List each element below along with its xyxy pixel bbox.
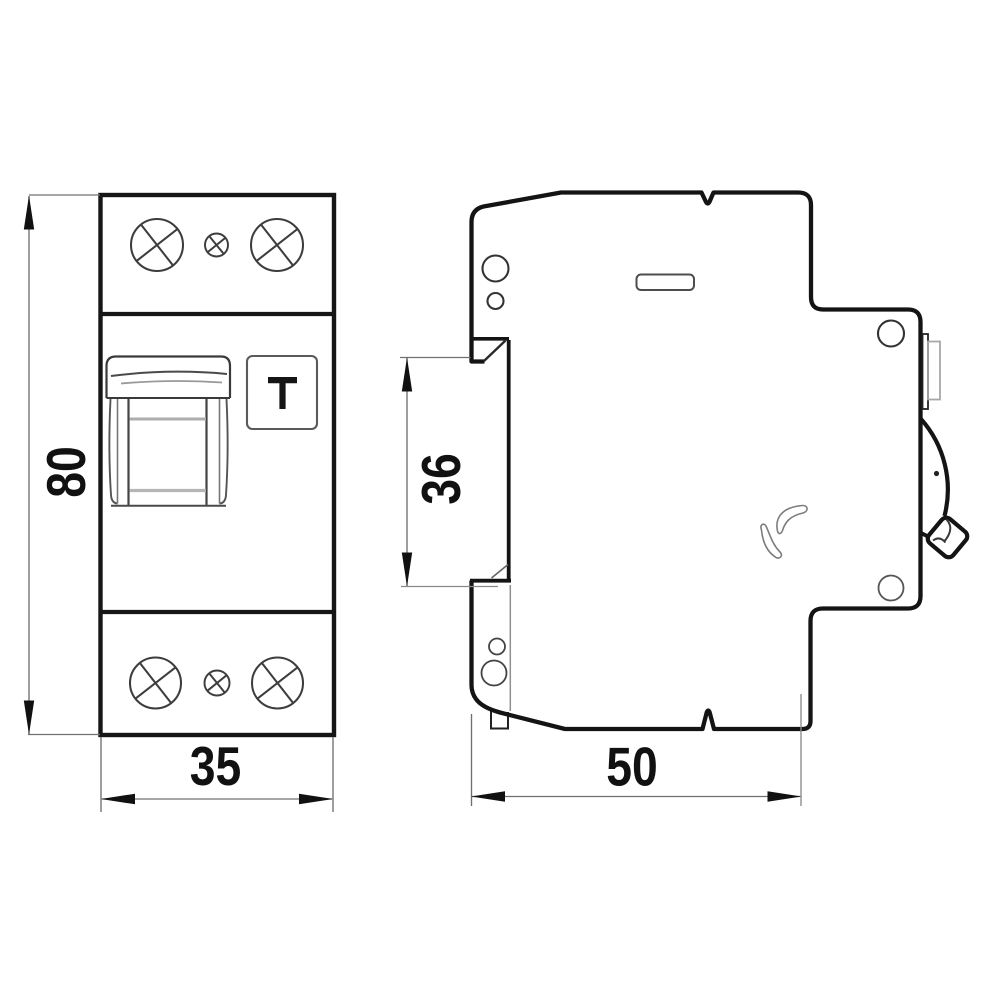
svg-text:35: 35: [190, 735, 242, 796]
svg-text:36: 36: [411, 453, 472, 505]
svg-text:50: 50: [606, 736, 658, 797]
svg-text:80: 80: [36, 446, 97, 498]
